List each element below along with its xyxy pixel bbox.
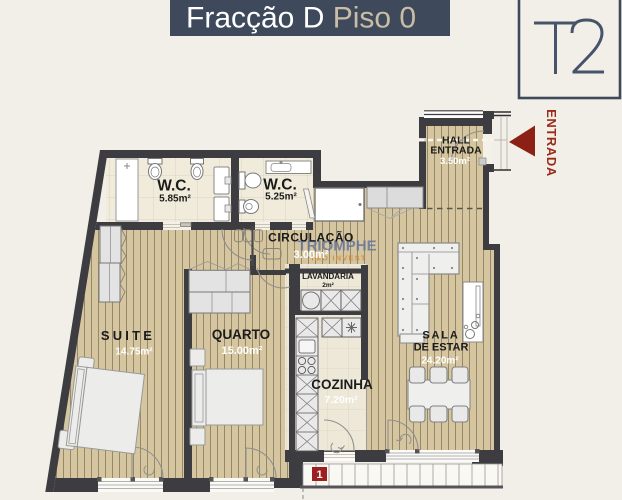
svg-text:SUITE: SUITE (101, 328, 155, 343)
svg-text:1: 1 (316, 469, 322, 481)
svg-text:W.C.: W.C. (157, 178, 191, 195)
svg-text:7.20m²: 7.20m² (324, 394, 358, 406)
svg-text:24.20m²: 24.20m² (421, 356, 459, 367)
svg-text:5.25m²: 5.25m² (265, 192, 297, 203)
svg-text:ENTRADA: ENTRADA (430, 145, 482, 157)
svg-text:LAVANDARIA: LAVANDARIA (302, 272, 354, 281)
svg-text:DE ESTAR: DE ESTAR (414, 342, 469, 354)
svg-text:2m²: 2m² (322, 282, 334, 289)
svg-text:QUARTO: QUARTO (212, 327, 270, 342)
svg-text:CIRCULAÇÃO: CIRCULAÇÃO (268, 230, 354, 245)
svg-text:14.75m²: 14.75m² (115, 347, 153, 358)
svg-text:ENTRADA: ENTRADA (544, 109, 559, 177)
svg-text:Fracção D Piso 0: Fracção D Piso 0 (186, 2, 416, 35)
svg-text:SALA: SALA (422, 330, 459, 342)
svg-text:COZINHA: COZINHA (311, 377, 373, 392)
svg-text:15.00m²: 15.00m² (222, 345, 263, 357)
svg-text:5.85m²: 5.85m² (159, 194, 191, 205)
svg-text:3.50m²: 3.50m² (440, 156, 470, 167)
svg-text:3.00m²: 3.00m² (294, 249, 329, 261)
